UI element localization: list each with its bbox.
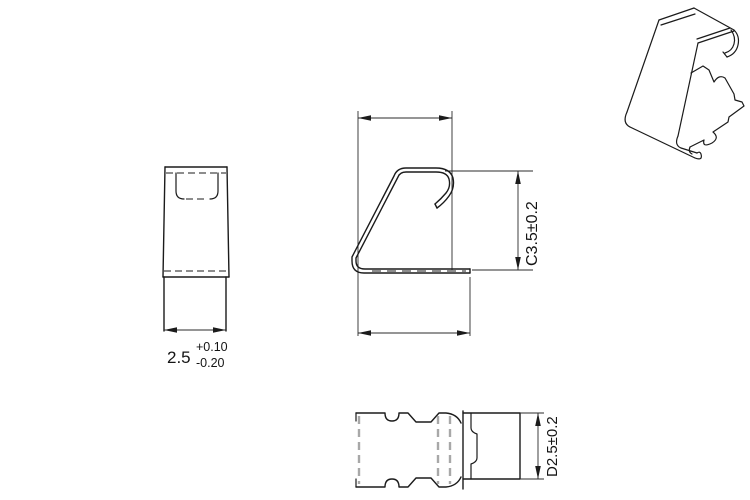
iso-base-bottom-edge — [630, 127, 695, 158]
bottom-top-edge — [356, 413, 461, 423]
side-view: C3.5±0.2 — [352, 111, 541, 336]
iso-band-ridge-tangent — [661, 14, 695, 25]
iso-bend-outer — [625, 112, 630, 127]
bottom-view: D2.5±0.2 — [356, 411, 561, 489]
iso-band-ridge — [659, 8, 694, 20]
front-width-dim-tol-minus: -0.20 — [196, 356, 225, 370]
bottom-tab-step — [471, 413, 477, 479]
iso-arm-right-edge — [678, 43, 698, 136]
isometric-view — [625, 8, 744, 159]
iso-notched-plate — [690, 66, 744, 147]
front-tab-left — [176, 173, 184, 199]
drawing-svg: 2.5 +0.10 -0.20 C3.5±0.2 D2.5±0.2 — [0, 0, 750, 500]
engineering-drawing-canvas: 2.5 +0.10 -0.20 C3.5±0.2 D2.5±0.2 — [0, 0, 750, 500]
bottom-height-dim-value: D2.5±0.2 — [544, 416, 561, 477]
side-hook-tip — [435, 204, 437, 208]
front-width-dim-tol-plus: +0.10 — [196, 340, 228, 354]
side-height-dim-value: C3.5±0.2 — [524, 201, 541, 266]
front-tab-right — [210, 173, 218, 199]
iso-arm-left-edge — [627, 20, 659, 112]
bottom-bottom-edge — [356, 477, 461, 487]
iso-band-right-edge — [694, 8, 734, 30]
front-width-dim-value: 2.5 — [167, 348, 191, 367]
front-outline-right — [227, 167, 229, 277]
front-view: 2.5 +0.10 -0.20 — [163, 167, 229, 370]
front-outline-left — [163, 167, 165, 277]
iso-bend-inner — [677, 136, 681, 148]
